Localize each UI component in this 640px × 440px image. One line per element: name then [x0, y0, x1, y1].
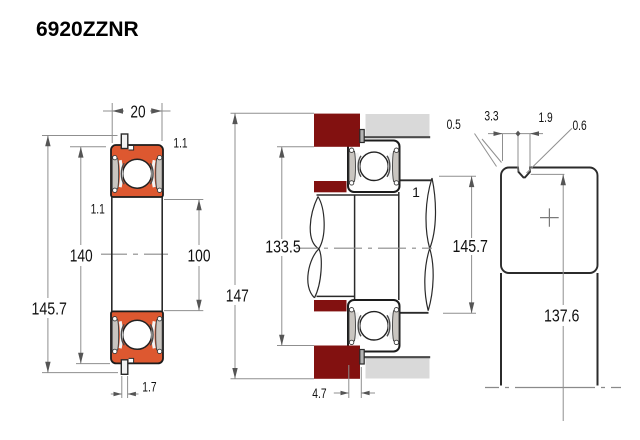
svg-text:140: 140 — [70, 246, 93, 266]
svg-text:1.7: 1.7 — [142, 379, 156, 395]
svg-text:20: 20 — [130, 102, 145, 122]
svg-text:145.7: 145.7 — [31, 299, 67, 319]
svg-text:0.6: 0.6 — [572, 117, 586, 133]
svg-text:133.5: 133.5 — [265, 237, 301, 257]
svg-text:137.6: 137.6 — [544, 306, 580, 326]
svg-text:1.9: 1.9 — [538, 109, 552, 125]
svg-text:1: 1 — [412, 184, 420, 200]
svg-text:3.3: 3.3 — [484, 108, 498, 124]
svg-text:1.1: 1.1 — [91, 201, 105, 217]
svg-text:6920ZZNR: 6920ZZNR — [36, 18, 139, 41]
svg-text:0.5: 0.5 — [447, 116, 461, 132]
svg-text:100: 100 — [188, 246, 211, 266]
svg-text:147: 147 — [226, 286, 249, 306]
svg-text:145.7: 145.7 — [452, 236, 488, 256]
svg-text:1.1: 1.1 — [173, 135, 187, 151]
svg-text:4.7: 4.7 — [312, 385, 326, 401]
